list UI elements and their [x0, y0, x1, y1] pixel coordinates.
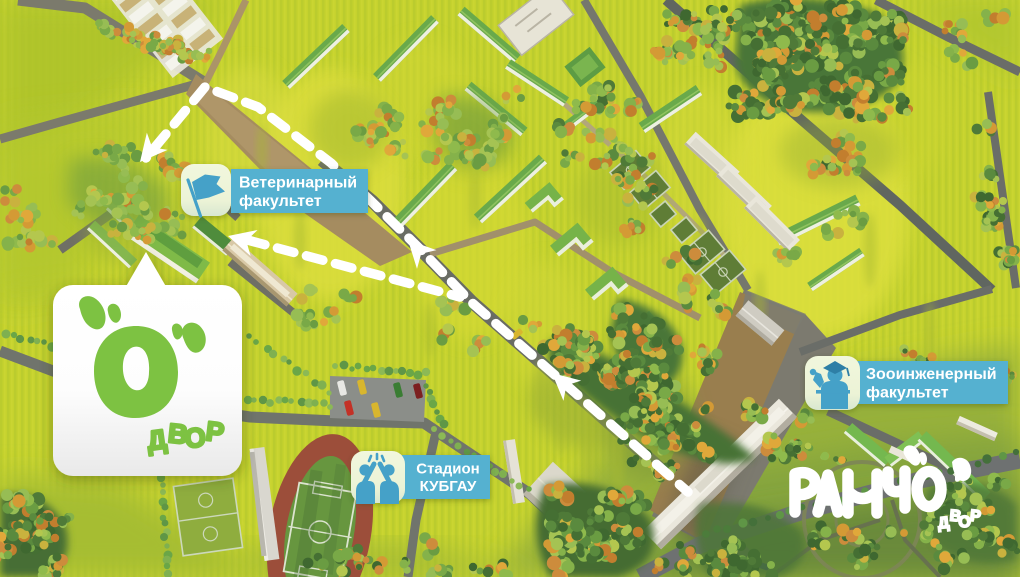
svg-text:Ветеринарный: Ветеринарный: [239, 175, 357, 192]
svg-text:О: О: [183, 422, 207, 454]
svg-text:КУБГАУ: КУБГАУ: [420, 478, 477, 495]
svg-text:Р: Р: [204, 416, 226, 448]
svg-text:Р: Р: [969, 508, 982, 526]
svg-text:Зооинженерный: Зооинженерный: [866, 366, 997, 383]
svg-text:факультет: факультет: [239, 193, 322, 210]
svg-text:факультет: факультет: [866, 385, 949, 402]
svg-text:Стадион: Стадион: [416, 461, 480, 478]
